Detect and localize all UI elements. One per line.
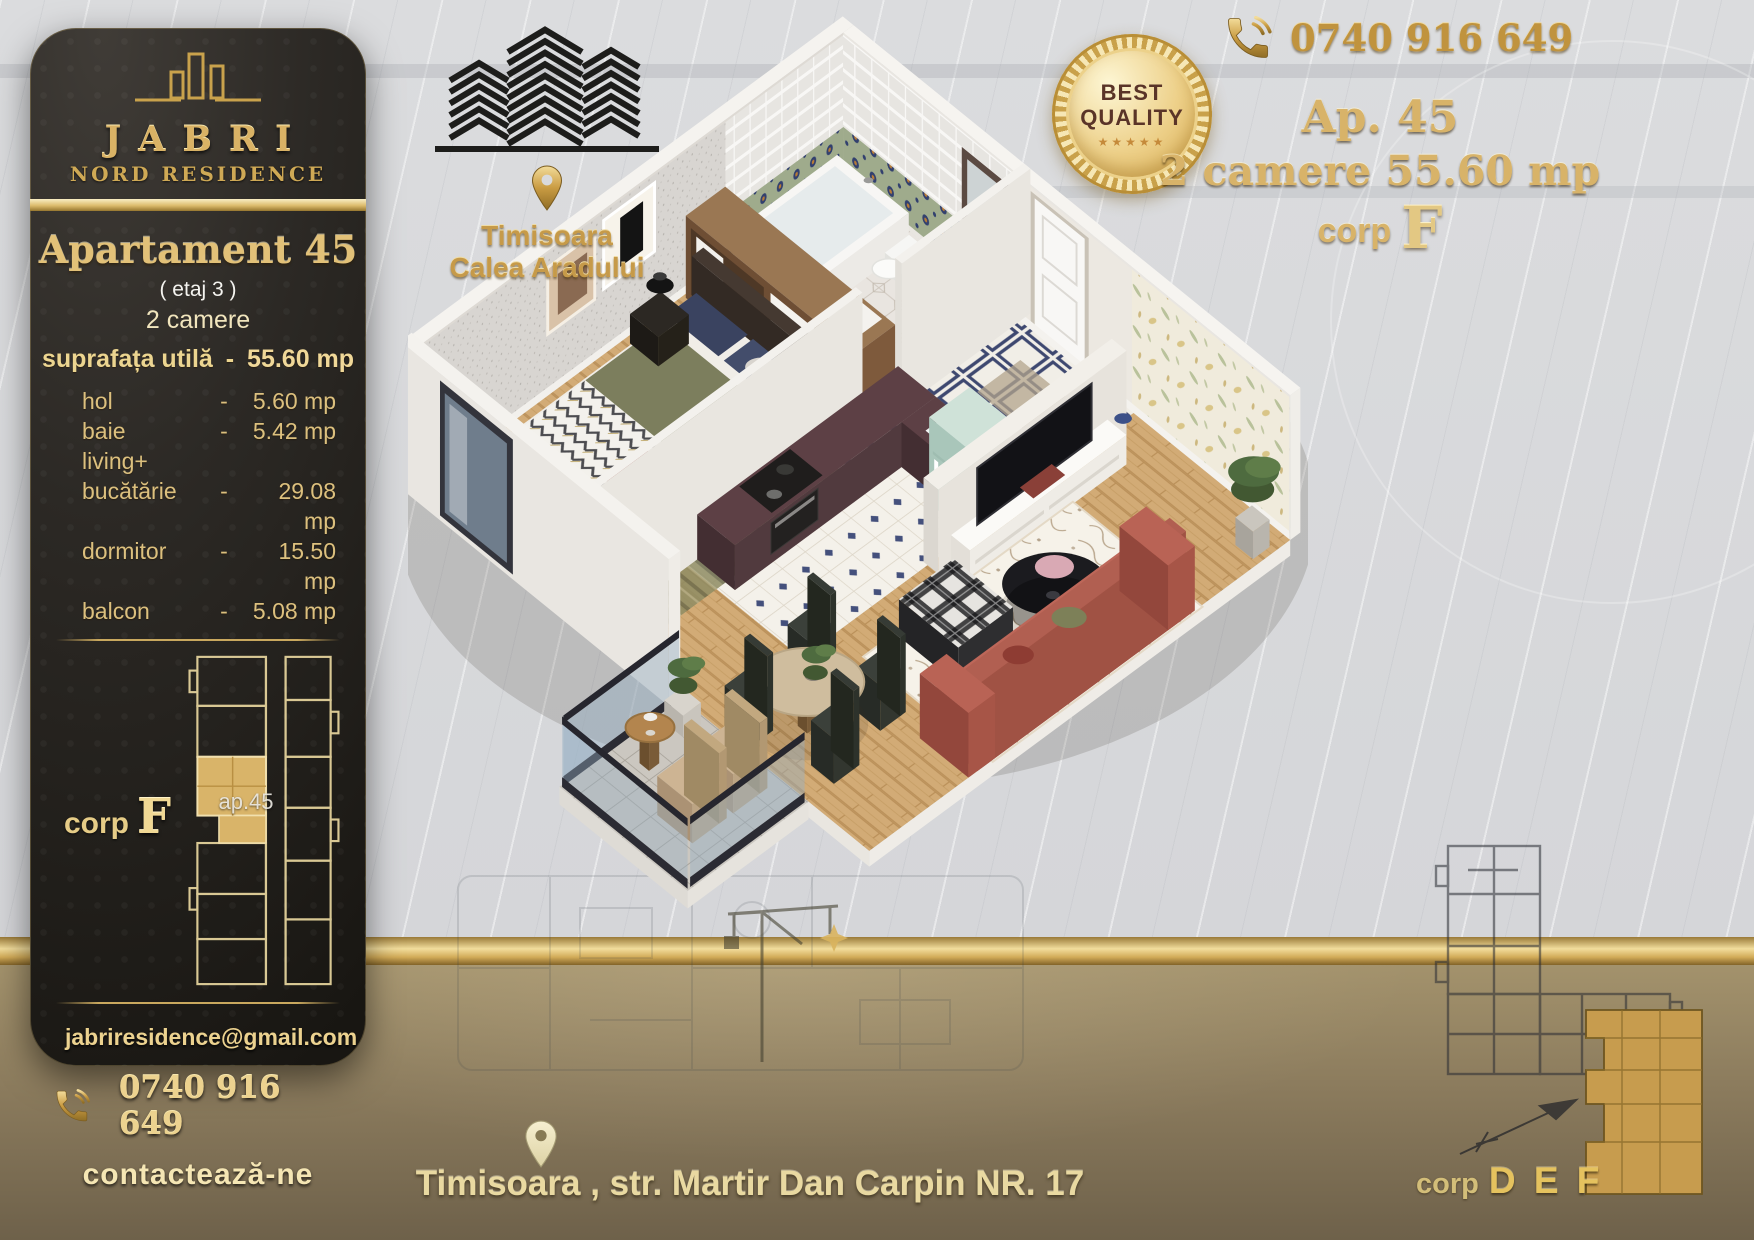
- surface-label: balcon: [82, 596, 206, 626]
- phone-icon: [52, 1085, 92, 1127]
- surface-value: 5.08 mp: [242, 596, 344, 626]
- location-pin-wrap: [402, 165, 692, 216]
- flyer-canvas: Timisoara Calea Aradului 0740 916 649 BE…: [0, 0, 1754, 1240]
- surface-sep: -: [206, 596, 242, 626]
- gold-logo-bar: [30, 199, 366, 211]
- header-phone: 0740 916 649: [1222, 12, 1573, 64]
- surface-row-dormitor: dormitor - 15.50 mp: [82, 536, 344, 596]
- surface-row-hol: hol - 5.60 mp: [82, 386, 344, 416]
- brand-subtitle: NORD RESIDENCE: [30, 162, 366, 186]
- gold-divider: [56, 639, 340, 641]
- surface-label: living+: [82, 446, 206, 476]
- corp-letter: F: [137, 789, 171, 845]
- area-value: 55.60 mp: [247, 345, 354, 373]
- surface-value: [242, 446, 344, 476]
- location-city: Timisoara: [402, 220, 692, 252]
- email-row: jabriresidence@gmail.com: [30, 1018, 366, 1056]
- apartment-summary: Ap. 45 2 camere 55.60 mp corpF: [1120, 92, 1640, 268]
- north-arrow-icon: [1460, 1100, 1576, 1154]
- contact-cta: contactează-ne: [30, 1158, 366, 1192]
- area-sep: -: [226, 345, 234, 373]
- surface-row-living: living+: [82, 446, 344, 476]
- rooms-line: 2 camere: [30, 306, 366, 335]
- apartment-title: Apartament 45: [30, 227, 366, 272]
- location-pin-icon: [530, 165, 564, 211]
- buildings-icon: [422, 20, 672, 160]
- surface-sep: [206, 446, 242, 476]
- site-plan-outline: [1390, 842, 1720, 1202]
- site-plan-corp-def: corpD E F: [1390, 842, 1720, 1222]
- surface-value: 15.50 mp: [242, 536, 344, 596]
- surface-sep: -: [206, 386, 242, 416]
- surface-label: dormitor: [82, 536, 206, 596]
- corp-word: corp: [1318, 212, 1392, 250]
- unit-label: ap.45: [198, 789, 294, 815]
- surface-sep: -: [206, 476, 242, 536]
- surface-sep: -: [206, 536, 242, 596]
- location-badge-top: Timisoara Calea Aradului: [402, 20, 692, 284]
- surface-label: hol: [82, 386, 206, 416]
- phone-row: 0740 916 649: [30, 1070, 366, 1142]
- gold-divider-2: [56, 1002, 340, 1004]
- apartment-details: 2 camere 55.60 mp: [1120, 144, 1640, 198]
- surface-row-baie: baie - 5.42 mp: [82, 416, 344, 446]
- surface-label: bucătărie: [82, 476, 206, 536]
- surface-row-balcon: balcon - 5.08 mp: [82, 596, 344, 626]
- email-address: jabriresidence@gmail.com: [65, 1024, 357, 1051]
- apartment-number: Ap. 45: [1120, 92, 1640, 144]
- corp-word: corp: [1416, 1168, 1479, 1200]
- surfaces-list: hol - 5.60 mp baie - 5.42 mp living+ buc…: [30, 386, 366, 626]
- apartment-corp: corpF: [1120, 198, 1640, 268]
- surface-row-bucatarie: bucătărie - 29.08 mp: [82, 476, 344, 536]
- corp-word: corp: [64, 807, 129, 840]
- area-label: suprafața utilă: [42, 345, 213, 373]
- location-pin-icon: [523, 1120, 559, 1168]
- phone-icon: [1222, 12, 1274, 64]
- surface-value: 5.42 mp: [242, 416, 344, 446]
- header-phone-number: 0740 916 649: [1290, 16, 1573, 60]
- corp-floorplan-area: corpF: [30, 651, 366, 989]
- jabri-building-logo-icon: [123, 48, 273, 110]
- corp-def-label: corpD E F: [1416, 1160, 1603, 1202]
- surface-value: 29.08 mp: [242, 476, 344, 536]
- corp-letter: F: [1401, 194, 1442, 262]
- corp-letters: D E F: [1489, 1160, 1604, 1201]
- surface-sep: -: [206, 416, 242, 446]
- footer-address: Timisoara , str. Martir Dan Carpin NR. 1…: [320, 1164, 1180, 1204]
- panel-phone-number: 0740 916 649: [119, 1070, 344, 1142]
- location-street: Calea Aradului: [402, 252, 692, 284]
- brand-logo-block: JABRI NORD RESIDENCE: [30, 28, 366, 211]
- area-line: suprafața utilă - 55.60 mp: [30, 345, 366, 374]
- brand-name: JABRI: [30, 119, 366, 160]
- surface-label: baie: [82, 416, 206, 446]
- info-panel: JABRI NORD RESIDENCE Apartament 45 ( eta…: [30, 28, 366, 1066]
- floor-line: ( etaj 3 ): [30, 278, 366, 302]
- surface-value: 5.60 mp: [242, 386, 344, 416]
- corp-f-floorplan-outline: [188, 651, 340, 989]
- corp-f-label: corpF: [64, 789, 171, 845]
